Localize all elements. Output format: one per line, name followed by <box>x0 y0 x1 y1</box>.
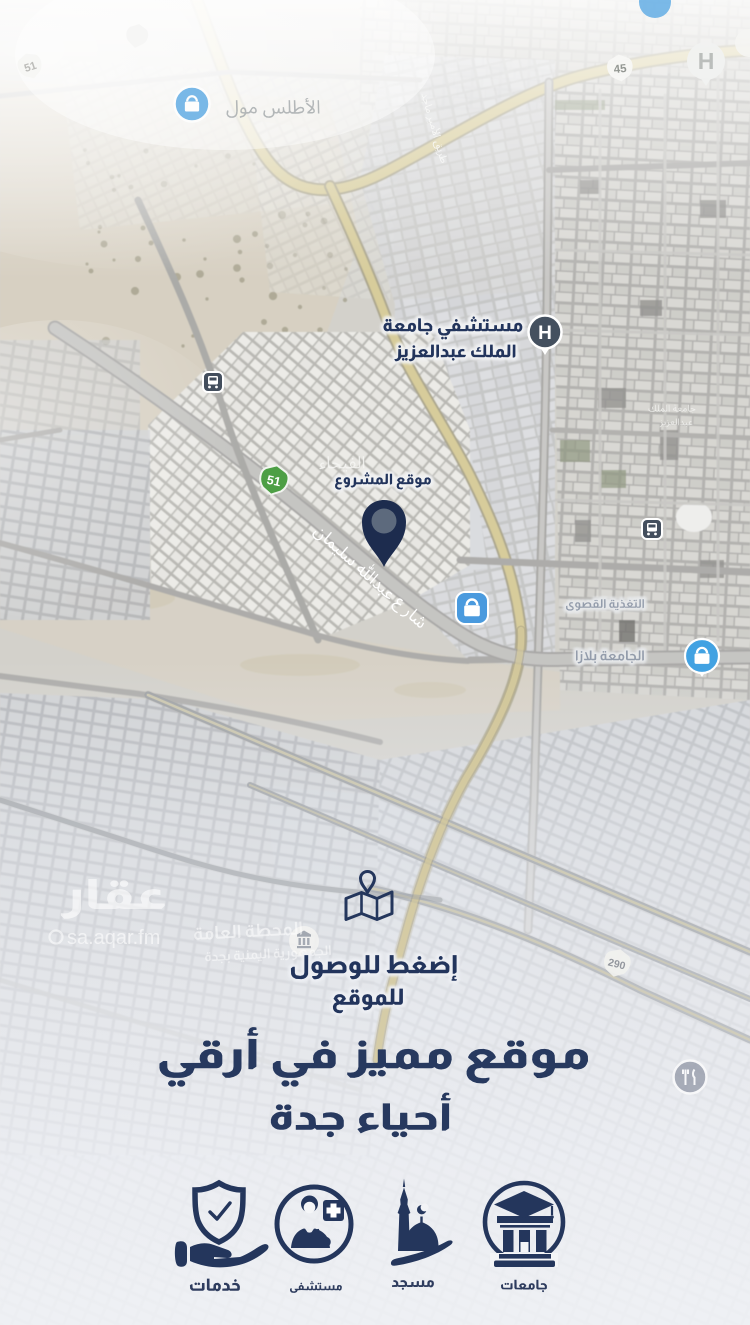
svg-text:51: 51 <box>266 473 283 490</box>
svg-text:45: 45 <box>613 63 628 76</box>
svg-text:H: H <box>538 323 552 344</box>
svg-text:H: H <box>698 48 715 74</box>
svg-text:sa.aqar.fm: sa.aqar.fm <box>67 927 160 949</box>
